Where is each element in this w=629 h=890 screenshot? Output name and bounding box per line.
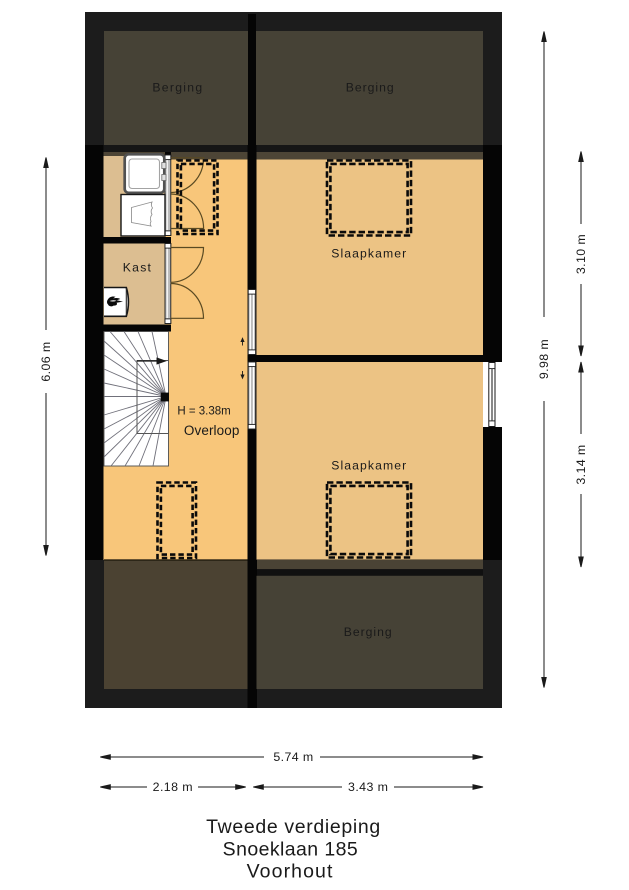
svg-text:6.06 m: 6.06 m bbox=[39, 341, 53, 381]
svg-text:3.14 m: 3.14 m bbox=[574, 444, 588, 484]
svg-text:Kast: Kast bbox=[123, 261, 152, 275]
svg-text:Slaapkamer: Slaapkamer bbox=[331, 246, 407, 260]
svg-text:Snoeklaan 185: Snoeklaan 185 bbox=[223, 838, 358, 860]
svg-text:Tweede verdieping: Tweede verdieping bbox=[206, 816, 381, 838]
svg-text:2.18 m: 2.18 m bbox=[153, 780, 193, 794]
svg-text:3.43 m: 3.43 m bbox=[348, 780, 388, 794]
svg-text:Berging: Berging bbox=[152, 80, 203, 94]
svg-text:3.10 m: 3.10 m bbox=[574, 234, 588, 274]
svg-text:Slaapkamer: Slaapkamer bbox=[331, 459, 407, 473]
svg-text:Berging: Berging bbox=[344, 625, 393, 639]
svg-text:Voorhout: Voorhout bbox=[247, 861, 334, 883]
svg-text:H = 3.38m: H = 3.38m bbox=[177, 406, 230, 418]
svg-text:5.74 m: 5.74 m bbox=[273, 750, 313, 764]
svg-text:9.98 m: 9.98 m bbox=[537, 339, 551, 379]
svg-text:Berging: Berging bbox=[346, 80, 395, 94]
svg-text:Overloop: Overloop bbox=[184, 423, 240, 438]
